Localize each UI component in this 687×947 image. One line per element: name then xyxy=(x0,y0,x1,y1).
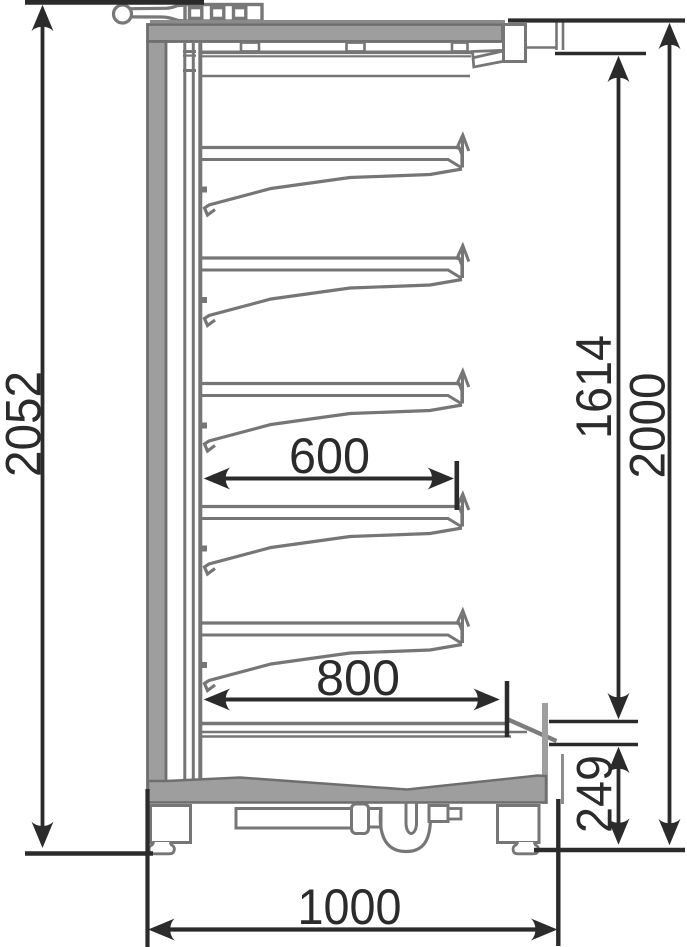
svg-text:800: 800 xyxy=(316,650,400,706)
svg-text:249: 249 xyxy=(567,755,623,833)
svg-text:1000: 1000 xyxy=(298,879,402,935)
svg-text:1614: 1614 xyxy=(566,335,622,439)
svg-text:600: 600 xyxy=(289,428,370,484)
svg-text:2000: 2000 xyxy=(620,373,676,479)
svg-text:2052: 2052 xyxy=(0,371,52,477)
